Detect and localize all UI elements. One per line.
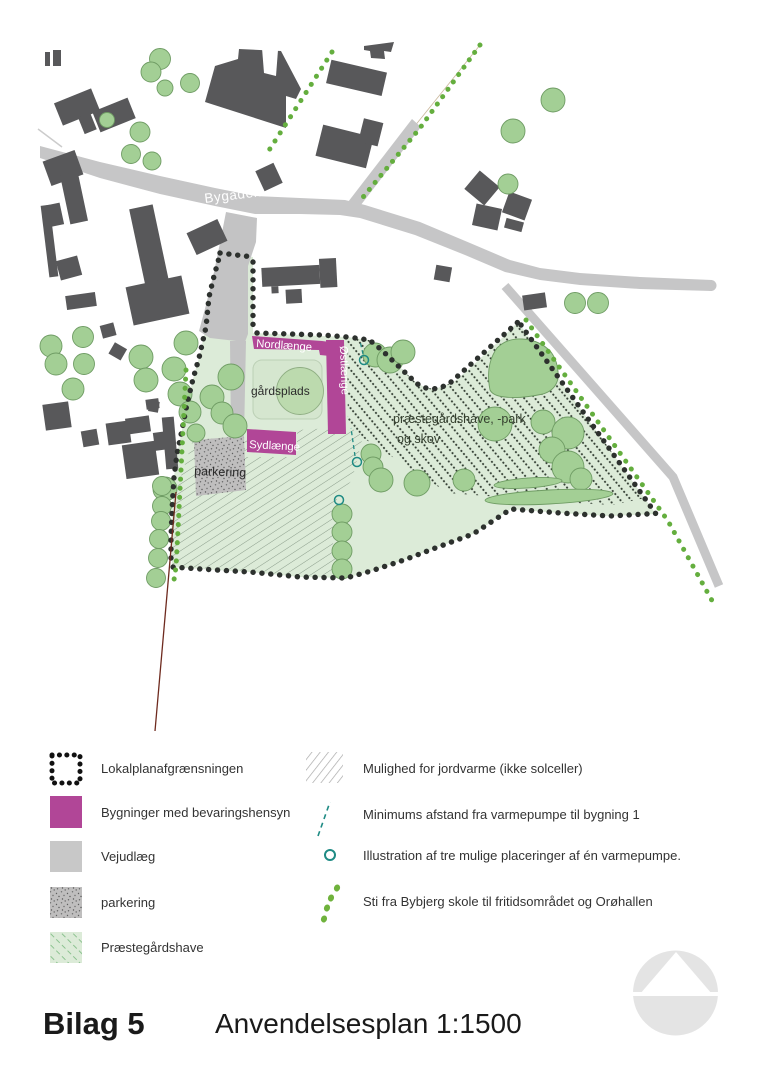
svg-text:Præstegårdshave: Præstegårdshave (101, 940, 204, 955)
svg-text:og skov: og skov (397, 432, 441, 446)
svg-text:gårdsplads: gårdsplads (251, 384, 310, 398)
svg-text:parkering: parkering (194, 464, 247, 480)
svg-text:Mulighed for jordvarme (ikke s: Mulighed for jordvarme (ikke solceller) (363, 761, 583, 776)
svg-text:Østlænge: Østlænge (337, 346, 351, 395)
svg-text:Vejudlæg: Vejudlæg (101, 849, 155, 864)
svg-text:Illustration af tre mulige pla: Illustration af tre mulige placeringer a… (363, 848, 681, 863)
svg-text:Bilag 5: Bilag 5 (43, 1006, 145, 1041)
svg-text:præstegårdshave, -park: præstegårdshave, -park (393, 412, 526, 426)
svg-text:parkering: parkering (101, 895, 155, 910)
svg-text:Minimums afstand fra varmepump: Minimums afstand fra varmepumpe til bygn… (363, 807, 640, 822)
svg-text:Sti fra Bybjerg skole til frit: Sti fra Bybjerg skole til fritidsområdet… (363, 894, 653, 909)
svg-text:Lokalplanafgrænsningen: Lokalplanafgrænsningen (101, 761, 243, 776)
svg-text:Anvendelsesplan 1:1500: Anvendelsesplan 1:1500 (215, 1008, 522, 1039)
svg-text:Bygninger med bevaringshensyn: Bygninger med bevaringshensyn (101, 805, 290, 820)
